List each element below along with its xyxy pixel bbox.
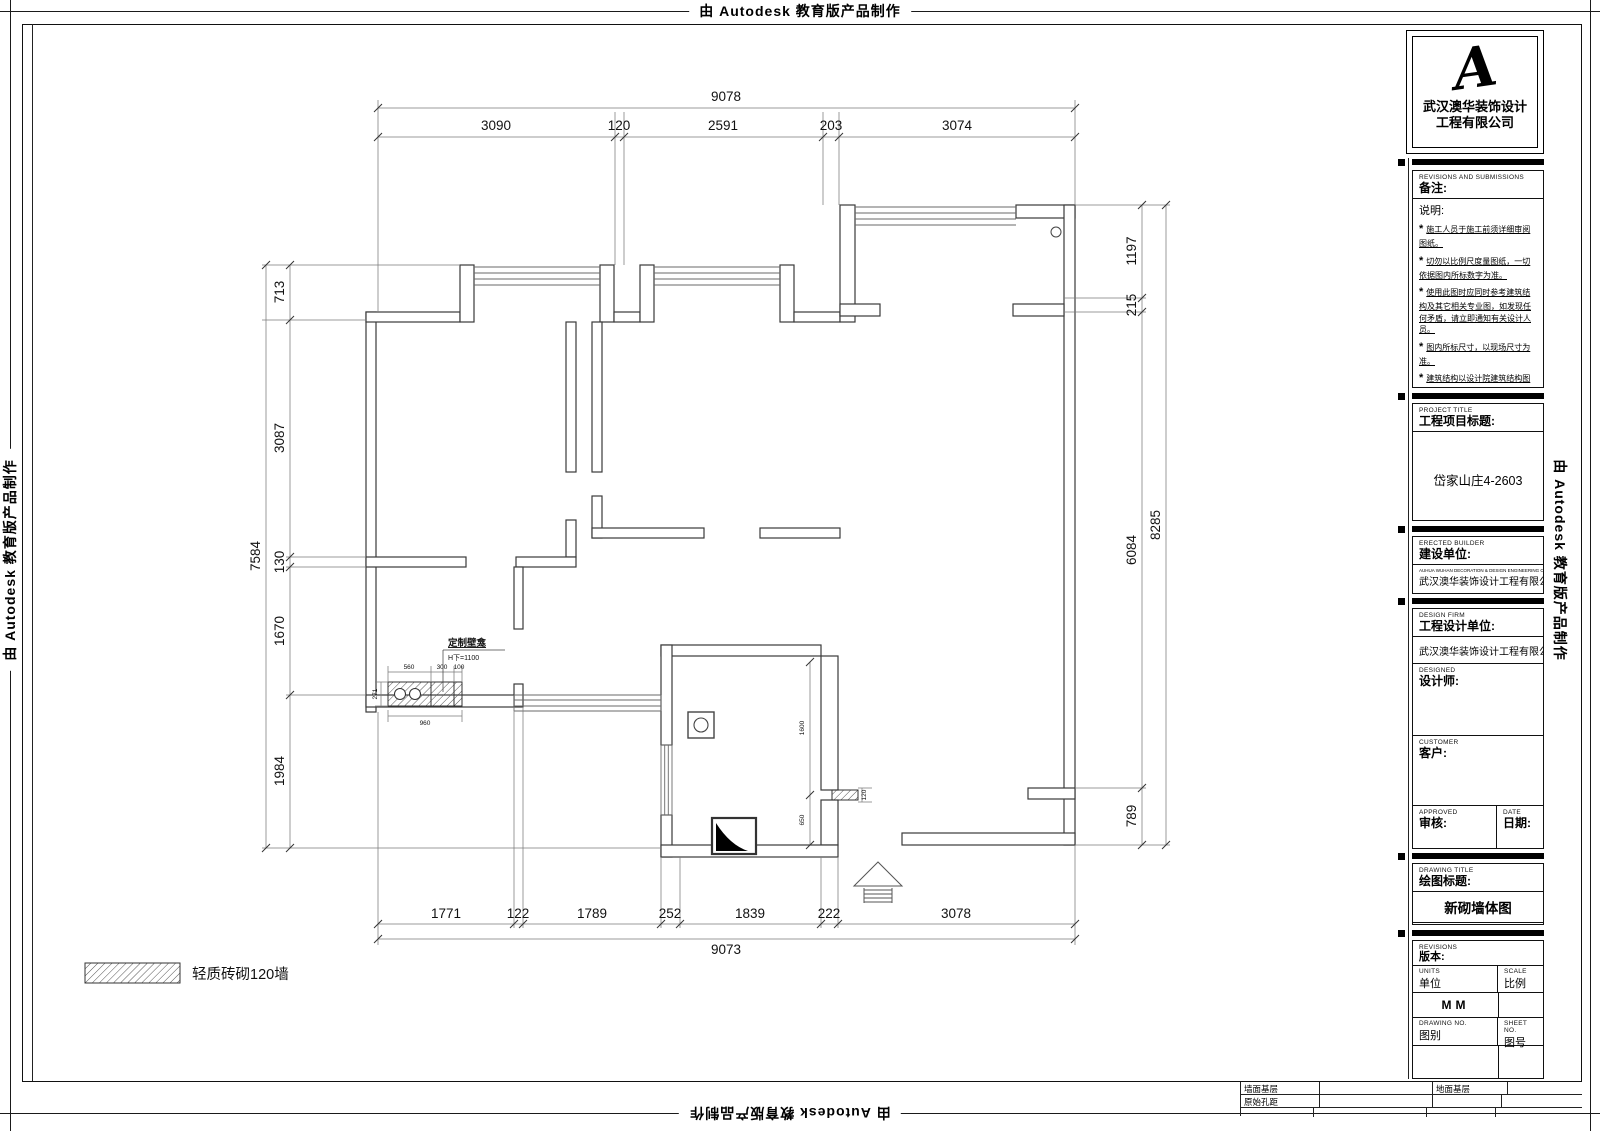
walls bbox=[366, 205, 1075, 857]
bar-square bbox=[1398, 393, 1405, 400]
note-item: *图内所标尺寸，以现场尺寸为准。 bbox=[1419, 340, 1537, 368]
drawing-title-label: 绘图标题: bbox=[1419, 874, 1537, 889]
dim-bot-3: 1789 bbox=[577, 906, 607, 921]
dim-left-overall: 7584 bbox=[248, 540, 263, 571]
legend: 轻质砖砌120墙 bbox=[85, 963, 289, 983]
footer-cell-empty bbox=[1241, 1108, 1314, 1117]
floor-plan-svg: 9078 3090 120 2591 203 3074 1771 122 178… bbox=[0, 0, 1400, 1082]
approval-row: APPROVED 审核: DATE 日期: bbox=[1412, 805, 1544, 849]
designer-section: DESIGNED 设计师: bbox=[1412, 663, 1544, 736]
dim-top-1: 3090 bbox=[481, 118, 511, 133]
bay1-column-right bbox=[600, 265, 614, 322]
bedroom1-right-wall-stub bbox=[566, 520, 576, 557]
dim-left-2: 3087 bbox=[272, 423, 287, 453]
designed-label: 设计师: bbox=[1419, 674, 1537, 689]
drain-box bbox=[688, 712, 714, 738]
bath-dim-wall: 120 bbox=[861, 789, 868, 800]
scale-en: SCALE bbox=[1504, 968, 1537, 975]
dim-top-3: 2591 bbox=[708, 118, 738, 133]
dim-bot-1: 1771 bbox=[431, 906, 461, 921]
dim-bot-6: 222 bbox=[818, 906, 841, 921]
dim-top-5: 3074 bbox=[942, 118, 973, 133]
bedroom2-bottom-wall-b bbox=[760, 528, 840, 538]
units-en: UNITS bbox=[1419, 968, 1491, 975]
titleblock-rail bbox=[1408, 158, 1409, 1079]
drawing-no-label: 图别 bbox=[1419, 1027, 1491, 1043]
footer-cell-empty bbox=[1427, 1108, 1496, 1117]
footer-cell-empty bbox=[1502, 1095, 1582, 1107]
date-cell: DATE 日期: bbox=[1497, 805, 1544, 849]
dim-bot-2: 122 bbox=[507, 906, 530, 921]
footer-cell-empty bbox=[1320, 1095, 1433, 1107]
kitchen-right-wall-a bbox=[514, 567, 523, 629]
bay2-column-left bbox=[640, 265, 654, 322]
dim-left-4: 1670 bbox=[272, 616, 287, 646]
dim-bot-7: 3078 bbox=[941, 906, 971, 921]
bath-right-wall-a bbox=[821, 656, 838, 790]
entry-bottom-wall bbox=[902, 833, 1075, 845]
dim-right-3: 6084 bbox=[1124, 534, 1139, 565]
bay1-column-left bbox=[460, 265, 474, 322]
drawing-title-value: 新砌墙体图 bbox=[1413, 891, 1543, 923]
wall-right-outer bbox=[1064, 205, 1075, 845]
niche-dim-1: 560 bbox=[404, 664, 415, 671]
builder-label: 建设单位: bbox=[1419, 547, 1537, 562]
builder-section: ERECTED BUILDER 建设单位: AUHUA WUHAN DECORA… bbox=[1412, 536, 1544, 594]
wall-top-left bbox=[366, 312, 460, 322]
bedroom2-bottom-wall-a bbox=[592, 528, 704, 538]
drawing-no-cell: DRAWING NO. 图别 bbox=[1413, 1018, 1498, 1045]
revision-grid-section: REVISIONS 版本: UNITS 单位 SCALE 比例 MM DRAWI… bbox=[1412, 940, 1544, 1079]
units-cell: UNITS 单位 bbox=[1413, 966, 1498, 992]
design-firm-label: 工程设计单位: bbox=[1419, 619, 1537, 634]
stove-burner-1 bbox=[395, 689, 406, 700]
logo-inner: A 武汉澳华装饰设计 工程有限公司 bbox=[1412, 36, 1538, 148]
window-bay2 bbox=[654, 267, 780, 285]
footer-cell-orig-holes: 原始孔距 bbox=[1241, 1095, 1320, 1107]
footer-cell-empty bbox=[1433, 1095, 1502, 1107]
niche-dim-total: 960 bbox=[420, 720, 431, 727]
corner-hole-symbol bbox=[1051, 227, 1061, 237]
dim-right-overall: 8285 bbox=[1148, 510, 1163, 540]
niche-label: 定制壁龛 bbox=[447, 637, 487, 649]
builder-value: 武汉澳华装饰设计工程有限公司 bbox=[1419, 573, 1537, 588]
bath-left-wall-a bbox=[661, 645, 672, 745]
separator-bar bbox=[1412, 393, 1544, 399]
scale-value-empty bbox=[1499, 993, 1543, 1017]
bay2-column-right bbox=[780, 265, 794, 322]
design-firm-value: 武汉澳华装饰设计工程有限公司 bbox=[1419, 643, 1537, 658]
footer-cell-empty bbox=[1320, 1082, 1433, 1094]
right-notch-stub bbox=[1028, 788, 1075, 799]
wall-left-outer bbox=[366, 312, 376, 712]
dim-right-1: 1197 bbox=[1124, 236, 1139, 265]
separator-bar bbox=[1412, 526, 1544, 532]
project-title-label: 工程项目标题: bbox=[1419, 414, 1537, 429]
bar-square bbox=[1398, 526, 1405, 533]
scale-cell: SCALE 比例 bbox=[1498, 966, 1543, 992]
legend-swatch bbox=[85, 963, 180, 983]
project-title-value: 岱家山庄4-2603 bbox=[1419, 470, 1537, 489]
note-item: *切勿以比例尺度量图纸，一切依据图内所标数字为准。 bbox=[1419, 254, 1537, 282]
entry-arrow bbox=[854, 862, 902, 903]
kitchen-top-wall-b bbox=[516, 557, 576, 567]
approved-label: 审核: bbox=[1419, 816, 1490, 831]
customer-section: CUSTOMER 客户: bbox=[1412, 735, 1544, 806]
niche-dim-2: 300 bbox=[437, 664, 448, 671]
bath-dim-1: 1600 bbox=[799, 720, 806, 735]
notes-title: 说明: bbox=[1419, 202, 1537, 218]
approved-cell: APPROVED 审核: bbox=[1412, 805, 1497, 849]
logo-box: A 武汉澳华装饰设计 工程有限公司 bbox=[1406, 30, 1544, 154]
dimension-text: 9078 3090 120 2591 203 3074 1771 122 178… bbox=[248, 89, 1163, 957]
bath-dim-2: 650 bbox=[799, 814, 806, 825]
right-border-line bbox=[1590, 0, 1591, 1131]
project-title-section: PROJECT TITLE 工程项目标题: 岱家山庄4-2603 bbox=[1412, 403, 1544, 521]
units-label: 单位 bbox=[1419, 975, 1491, 991]
wall-top-mid bbox=[794, 312, 840, 322]
divider bbox=[1413, 431, 1543, 432]
note-item: *使用此图时应同时参考建筑结构及其它相关专业图，如发现任何矛盾，请立即通知有关设… bbox=[1419, 285, 1537, 336]
bay-gap-wall bbox=[614, 312, 640, 322]
kitchen-top-wall-a bbox=[366, 557, 466, 567]
separator-bar bbox=[1412, 598, 1544, 604]
dim-bottom-overall: 9073 bbox=[711, 942, 741, 957]
wall-stub-left bbox=[840, 304, 880, 316]
dim-top-2: 120 bbox=[608, 118, 631, 133]
remarks-label: 备注: bbox=[1419, 181, 1537, 196]
dim-top-4: 203 bbox=[820, 118, 843, 133]
cad-sheet: { "watermark": { "text": "由 Autodesk 教育版… bbox=[0, 0, 1600, 1131]
window-bay1 bbox=[474, 267, 600, 285]
dim-top-overall: 9078 bbox=[711, 89, 741, 104]
design-firm-section: DESIGN FIRM 工程设计单位: 武汉澳华装饰设计工程有限公司 bbox=[1412, 608, 1544, 664]
kitchen-right-wall-b bbox=[514, 684, 523, 707]
stove-burner-2 bbox=[410, 689, 421, 700]
sheet-no-en: SHEET NO. bbox=[1504, 1020, 1537, 1034]
units-value: MM bbox=[1413, 993, 1499, 1017]
niche-dim-3: 100 bbox=[454, 664, 465, 671]
windows bbox=[474, 207, 1016, 815]
new-wall-stub bbox=[832, 790, 858, 800]
footer-table: 墙面基层 地面基层 原始孔距 bbox=[1240, 1082, 1582, 1116]
window-top-right bbox=[855, 207, 1016, 225]
footer-cell-wall-base: 墙面基层 bbox=[1241, 1082, 1320, 1094]
dim-left-3: 130 bbox=[272, 551, 287, 574]
empty-cell bbox=[1499, 1046, 1543, 1079]
scale-label: 比例 bbox=[1504, 975, 1537, 991]
bath-right-wall-b bbox=[821, 800, 838, 845]
dim-bot-5: 1839 bbox=[735, 906, 765, 921]
empty-cell bbox=[1413, 1046, 1499, 1079]
drawing-no-en: DRAWING NO. bbox=[1419, 1020, 1491, 1027]
sheet-no-cell: SHEET NO. 图号 bbox=[1498, 1018, 1543, 1045]
legend-label: 轻质砖砌120墙 bbox=[192, 966, 289, 983]
bedroom2-left-wall bbox=[592, 322, 602, 472]
footer-cell-empty bbox=[1314, 1108, 1427, 1117]
window-bath-west bbox=[661, 745, 672, 815]
watermark-bottom: 由 Autodesk 教育版产品制作 bbox=[679, 1103, 901, 1123]
dim-right-2: 215 bbox=[1124, 294, 1139, 317]
wall-stub-right bbox=[1013, 304, 1064, 316]
dim-left-1: 713 bbox=[272, 281, 287, 304]
divider bbox=[1413, 198, 1543, 199]
bar-square bbox=[1398, 598, 1405, 605]
dim-bot-4: 252 bbox=[659, 906, 682, 921]
kitchen-counter bbox=[388, 682, 462, 706]
bedroom1-right-wall bbox=[566, 322, 576, 472]
dim-left-5: 1984 bbox=[272, 755, 287, 786]
customer-label: 客户: bbox=[1419, 746, 1537, 761]
bar-square bbox=[1398, 159, 1405, 166]
niche-height-note: H下=1100 bbox=[448, 654, 479, 662]
date-label: 日期: bbox=[1503, 816, 1537, 831]
separator-bar bbox=[1412, 930, 1544, 936]
footer-cell-empty bbox=[1496, 1108, 1582, 1117]
window-kitchen-south bbox=[514, 695, 661, 711]
divider bbox=[1413, 636, 1543, 637]
bar-square bbox=[1398, 930, 1405, 937]
bar-square bbox=[1398, 853, 1405, 860]
footer-cell-floor-base: 地面基层 bbox=[1433, 1082, 1508, 1094]
bath-top-wall bbox=[661, 645, 821, 656]
notes-section: REVISIONS AND SUBMISSIONS 备注: 说明: *施工人员于… bbox=[1412, 170, 1544, 388]
fixtures bbox=[388, 227, 1061, 903]
divider bbox=[1413, 564, 1543, 565]
separator-bar bbox=[1412, 853, 1544, 859]
footer-cell-empty bbox=[1508, 1082, 1582, 1094]
dim-right-4: 789 bbox=[1124, 805, 1139, 828]
note-item: *建筑结构以设计院建筑结构图为准。 bbox=[1419, 371, 1537, 388]
separator-bar bbox=[1412, 159, 1544, 165]
note-item: *施工人员于施工前须详细审阅图纸。 bbox=[1419, 222, 1537, 250]
drawing-title-section: DRAWING TITLE 绘图标题: 新砌墙体图 bbox=[1412, 863, 1544, 925]
logo-a-glyph: A bbox=[1409, 29, 1540, 108]
niche-dim-depth: 271 bbox=[372, 688, 379, 699]
company-name-line2: 工程有限公司 bbox=[1413, 115, 1537, 131]
revisions-label: 版本: bbox=[1419, 951, 1537, 965]
